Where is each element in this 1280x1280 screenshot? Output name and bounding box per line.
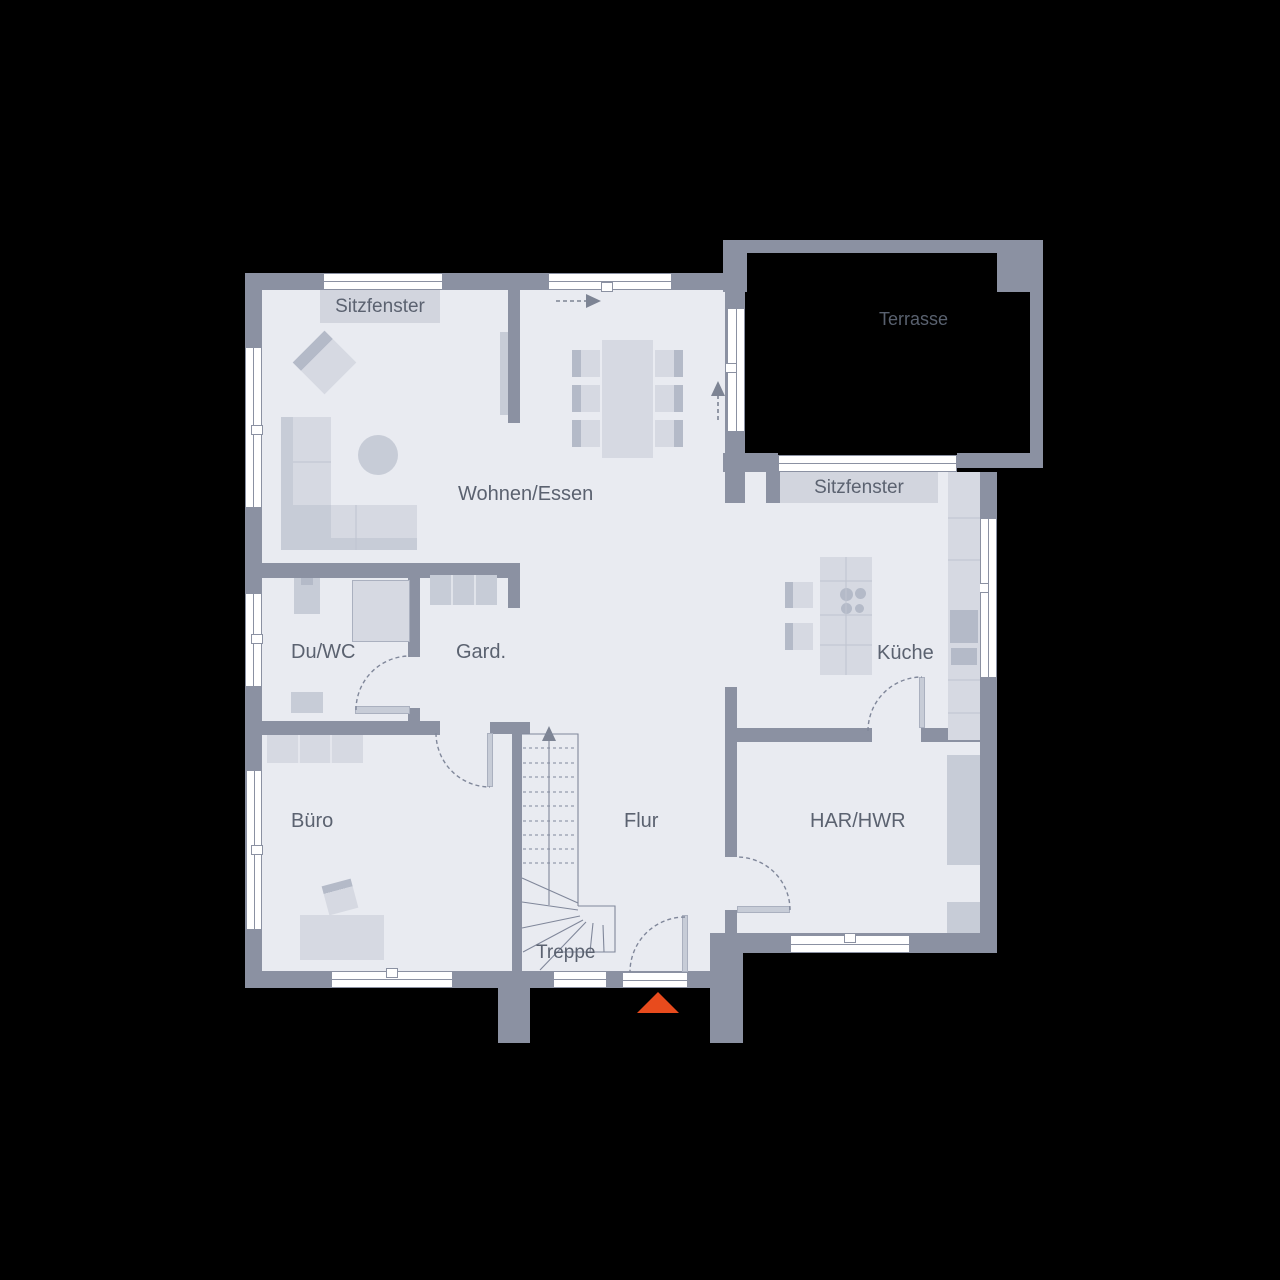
dining-chair-seat <box>581 385 600 412</box>
oven <box>950 610 978 643</box>
wall-terrace-bottom-east <box>957 453 1043 468</box>
shower <box>352 580 410 642</box>
label-kitchen: Küche <box>877 642 934 665</box>
label-hall: Flur <box>624 810 658 833</box>
wall-hall-utility-upper <box>725 687 737 857</box>
wall-hall-utility-lower <box>725 910 737 971</box>
dining-chair-back <box>674 350 683 377</box>
window-living-west-handle <box>251 425 263 435</box>
door-terrace-glass-handle <box>725 363 737 373</box>
window-office-west-handle <box>251 845 263 855</box>
door-leaf-duwc <box>355 706 410 714</box>
floor-east <box>727 472 980 933</box>
window-bay-north-midline <box>323 281 443 282</box>
window-kitchen-east-midline <box>988 518 989 678</box>
wall-stair-top <box>490 722 530 734</box>
sink-faucet <box>301 578 313 585</box>
window-duwc-west-handle <box>251 634 263 644</box>
kitchen-drawer <box>951 648 977 665</box>
cooktop-burner <box>855 588 866 599</box>
door-leaf-kitchen <box>919 677 925 728</box>
dining-chair-back <box>572 350 581 377</box>
window-office-south-handle <box>386 968 398 978</box>
cooktop-burner <box>855 604 864 613</box>
wall-kitchen-south-west <box>725 728 872 742</box>
cooktop-burner <box>841 603 852 614</box>
cooktop-burner <box>840 588 853 601</box>
label-bay-window-terrace: Sitzfenster <box>780 477 938 499</box>
window-office-south-midline <box>331 979 453 980</box>
office-desk <box>300 915 384 960</box>
toilet <box>291 692 323 713</box>
stool-seat <box>793 623 813 650</box>
wall-terrace-bottom-west <box>723 453 778 472</box>
floor-plan-canvas: SitzfensterSitzfensterTerrasseWohnen/Ess… <box>0 0 1280 1280</box>
wall-terrace-top <box>723 240 1043 253</box>
window-stair-south-midline <box>553 979 607 980</box>
sofa-back-left <box>281 417 293 550</box>
utility-cabinet <box>947 902 980 933</box>
stool-back <box>785 582 793 608</box>
door-leaf-gard <box>487 733 493 787</box>
window-utility-south-midline <box>790 944 910 945</box>
dining-chair-seat <box>655 420 674 447</box>
door-leaf-utility <box>737 906 790 913</box>
wall-stub-left <box>498 988 530 1043</box>
label-bay-window-north: Sitzfenster <box>320 296 440 318</box>
kitchen-counter-east <box>948 472 980 740</box>
stool-back <box>785 623 793 650</box>
label-wardrobe: Gard. <box>456 641 506 664</box>
door-entrance-threshold-midline <box>622 980 688 981</box>
window-bay-terrace-midline <box>778 463 957 464</box>
wardrobe-cabinet <box>430 575 497 605</box>
coffee-table-round <box>358 435 398 475</box>
dining-chair-seat <box>581 350 600 377</box>
wall-gard-stub <box>508 578 520 608</box>
dining-chair-back <box>572 385 581 412</box>
dining-chair-back <box>572 420 581 447</box>
wall-kitchen-stub <box>766 472 780 503</box>
dining-chair-back <box>674 385 683 412</box>
window-dining-north-handle <box>601 282 613 292</box>
office-shelf <box>267 735 363 763</box>
wall-terrace-pillar-east <box>997 240 1033 292</box>
wall-stair-west <box>512 722 522 972</box>
dining-chair-back <box>674 420 683 447</box>
utility-cabinet <box>947 755 980 865</box>
stool-seat <box>793 582 813 608</box>
label-terrace: Terrasse <box>879 309 948 330</box>
wall-partition-dining <box>508 290 520 423</box>
label-stairs: Treppe <box>536 942 596 964</box>
door-leaf-entrance <box>682 915 688 972</box>
label-shower-wc: Du/WC <box>291 641 355 664</box>
sliding-door-panel <box>500 332 508 415</box>
label-living: Wohnen/Essen <box>458 483 593 506</box>
dining-chair-seat <box>655 350 674 377</box>
kitchen-island <box>820 557 872 675</box>
wall-terrace-pillar-west <box>723 240 747 292</box>
entrance-marker <box>637 992 679 1013</box>
dining-chair-seat <box>581 420 600 447</box>
dining-chair-seat <box>655 385 674 412</box>
label-office: Büro <box>291 810 333 833</box>
window-utility-south-handle <box>844 933 856 943</box>
label-utility: HAR/HWR <box>810 810 906 833</box>
dining-table <box>602 340 653 458</box>
sofa-back-bottom <box>293 538 417 550</box>
